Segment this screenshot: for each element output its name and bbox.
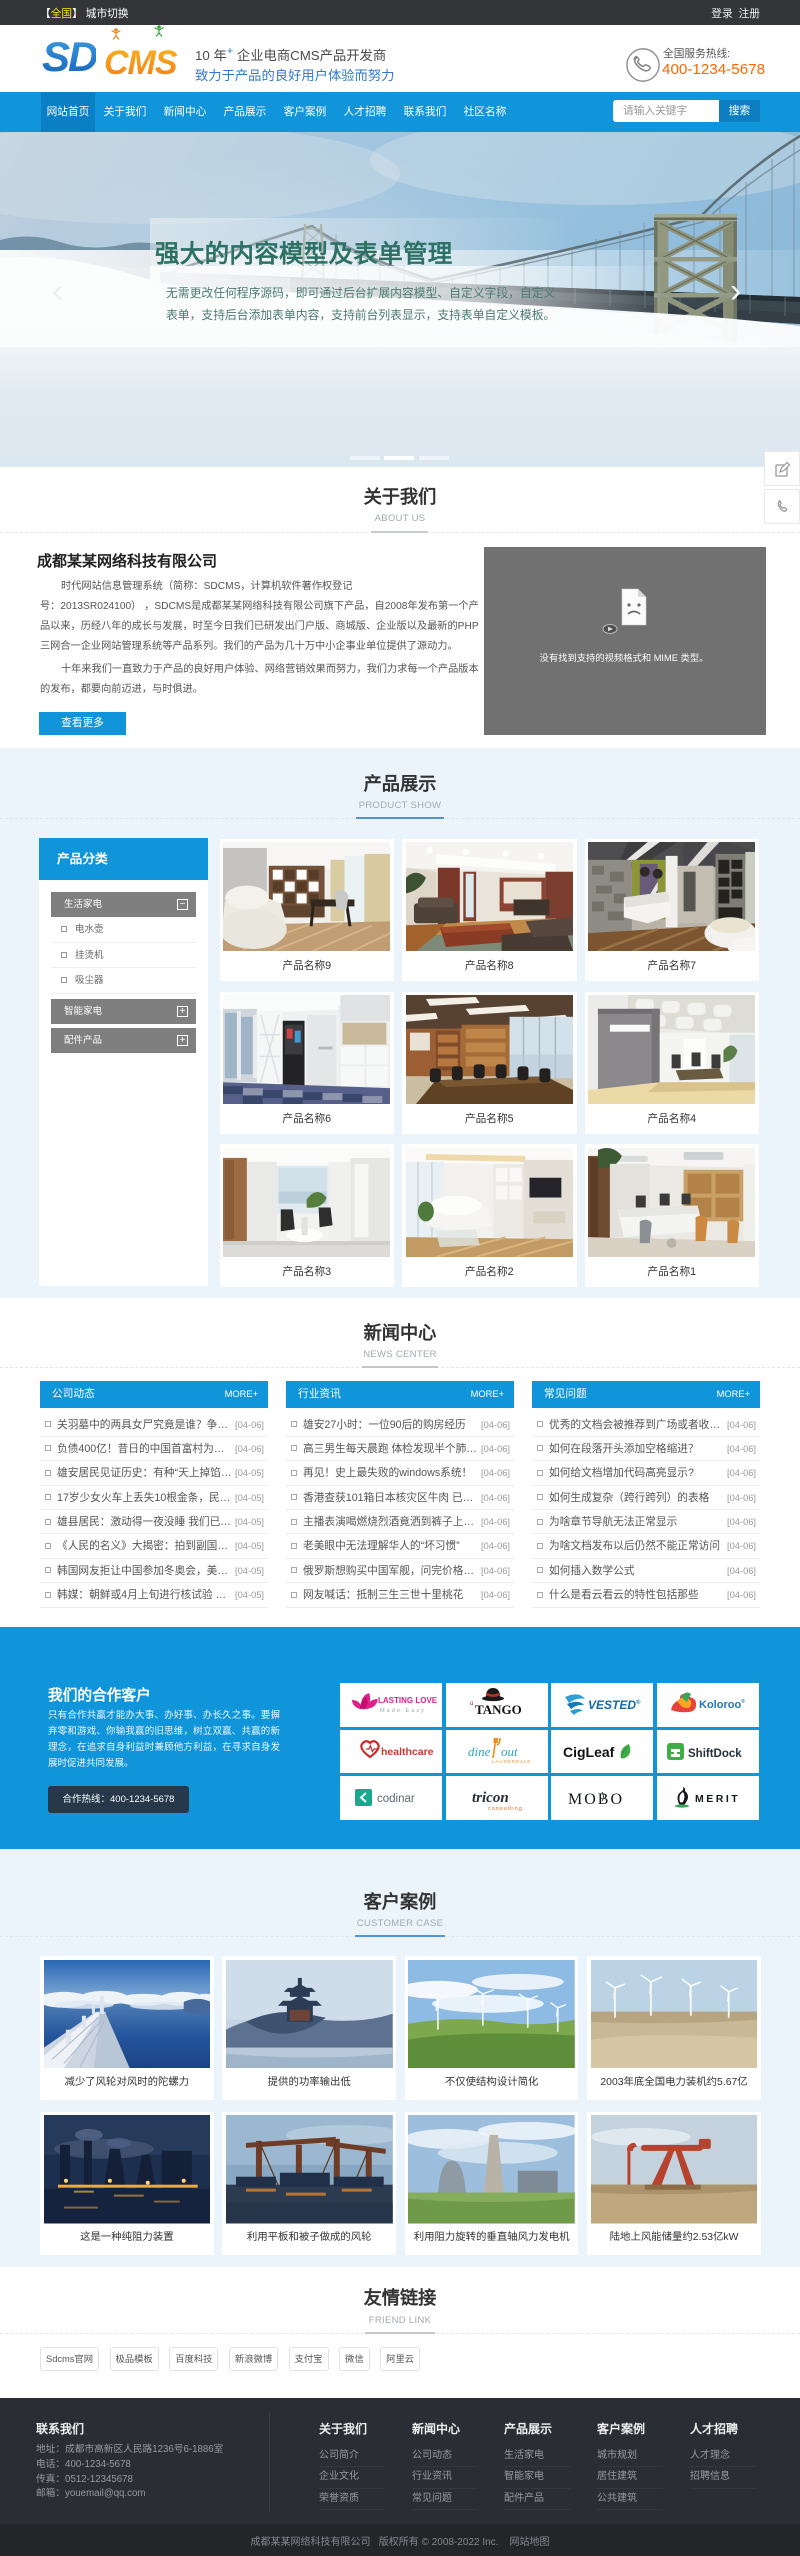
svg-text:healthcare: healthcare bbox=[381, 1746, 434, 1758]
svg-text:Made Easy: Made Easy bbox=[380, 1708, 426, 1714]
svg-text:CigLeaf: CigLeaf bbox=[563, 1744, 615, 1760]
svg-text:out: out bbox=[501, 1744, 518, 1759]
svg-text:LASTING LOVE: LASTING LOVE bbox=[378, 1696, 438, 1705]
svg-text:a: a bbox=[470, 1699, 474, 1707]
svg-text:dine: dine bbox=[468, 1744, 491, 1759]
svg-text:consulting: consulting bbox=[488, 1806, 523, 1812]
svg-text:ShiftDock: ShiftDock bbox=[688, 1748, 742, 1760]
svg-text:MOBO: MOBO bbox=[568, 1791, 624, 1808]
svg-text:codinar: codinar bbox=[377, 1793, 415, 1805]
svg-text:Koloroo®: Koloroo® bbox=[699, 1698, 745, 1711]
svg-text:tricon: tricon bbox=[472, 1790, 509, 1806]
svg-text:LAUDERDALE: LAUDERDALE bbox=[492, 1759, 531, 1764]
svg-text:VESTED®: VESTED® bbox=[588, 1698, 641, 1712]
svg-text:MERIT: MERIT bbox=[695, 1793, 740, 1805]
svg-text:TANGO: TANGO bbox=[475, 1702, 522, 1717]
